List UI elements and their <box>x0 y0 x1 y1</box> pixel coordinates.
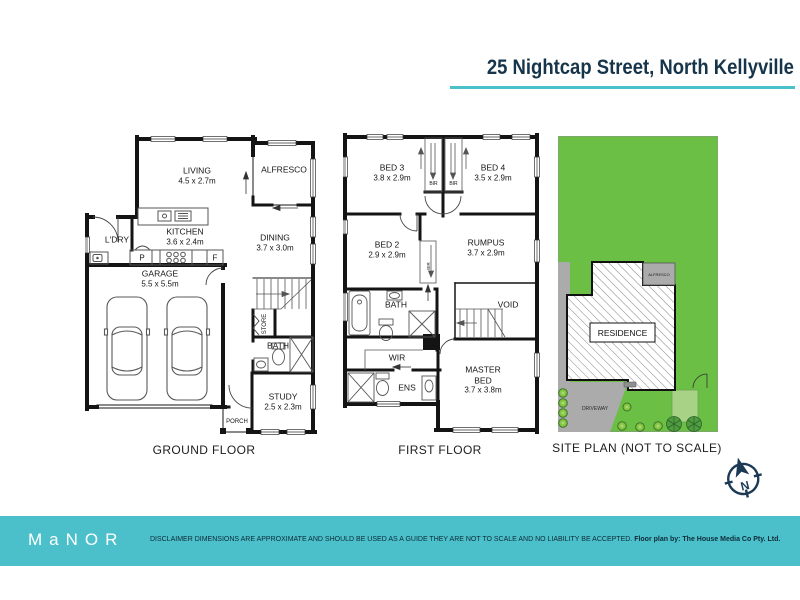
site-residence-label: RESIDENCE <box>598 328 648 338</box>
toilet-icon <box>376 373 389 396</box>
laundry-sink-icon <box>90 252 108 264</box>
site-porch-step <box>624 382 636 387</box>
room-label-bath: BATH <box>267 341 289 352</box>
compass-icon: N <box>715 450 771 506</box>
ground-stairs <box>253 279 311 309</box>
disclaimer-body: DISCLAIMER DIMENSIONS ARE APPROXIMATE AN… <box>150 536 632 543</box>
cooktop-icon <box>167 252 186 263</box>
basin-icon <box>387 291 402 300</box>
bathtub-icon <box>349 291 370 335</box>
site-plan: RESIDENCE ALFRESCO DRIVEWAY <box>558 136 718 432</box>
wall-block <box>423 334 440 350</box>
kitchen-island <box>138 208 208 225</box>
site-driveway-label: DRIVEWAY <box>582 406 609 412</box>
room-label-ens: ENS <box>398 383 415 394</box>
car-icon <box>165 297 210 400</box>
ground-floor-plan: P F STORE PORCH LIVING4.5 x 2.7m ALFRESC… <box>85 117 320 442</box>
site-plan-drawing: RESIDENCE ALFRESCO DRIVEWAY <box>558 136 718 432</box>
compass-north-label: N <box>739 478 751 494</box>
car-icon <box>105 297 150 400</box>
porch-label: PORCH <box>226 419 248 425</box>
room-label-alfresco: ALFRESCO <box>261 165 307 176</box>
shower-icon <box>348 373 374 402</box>
room-label-master-bed: MASTERBED 3.7 x 3.8m <box>464 364 501 395</box>
manor-logo: MaNOR <box>28 530 124 550</box>
room-label-kitchen: KITCHEN3.6 x 2.4m <box>166 227 203 248</box>
pantry-label: P <box>139 254 144 263</box>
bir-label: BIR <box>449 181 458 187</box>
room-label-bed2: BED 22.9 x 2.9m <box>368 240 405 261</box>
store-label: STORE <box>262 314 268 335</box>
bir-label: BIR <box>426 262 431 270</box>
room-label-dining: DINING3.7 x 3.0m <box>256 233 293 254</box>
room-label-ldry: L'DRY <box>105 235 129 246</box>
fridge-label: F <box>213 254 218 263</box>
first-floor-caption: FIRST FLOOR <box>398 443 482 457</box>
ens-fixtures <box>348 373 436 402</box>
first-bath-fixtures <box>349 291 435 341</box>
shower-icon <box>290 337 313 372</box>
room-label-bed4: BED 43.5 x 2.9m <box>474 163 511 184</box>
void-stairs <box>455 309 505 337</box>
room-label-living: LIVING4.5 x 2.7m <box>178 166 215 187</box>
site-plan-caption: SITE PLAN (NOT TO SCALE) <box>552 441 722 455</box>
first-floor-plan: BIR BIR BIR BED 33.8 x 2.9m BED 43.5 x 2… <box>343 117 543 442</box>
room-label-garage: GARAGE5.5 x 5.5m <box>141 269 178 290</box>
room-label-study: STUDY2.5 x 2.3m <box>264 392 301 413</box>
room-label-bed3: BED 33.8 x 2.9m <box>373 163 410 184</box>
basin-icon <box>422 376 436 400</box>
property-address: 25 Nightcap Street, North Kellyville <box>487 56 794 80</box>
basin-icon <box>254 358 268 371</box>
disclaimer-text: DISCLAIMER DIMENSIONS ARE APPROXIMATE AN… <box>150 536 780 543</box>
room-label-void: VOID <box>498 300 519 311</box>
floorplan-sheet: 25 Nightcap Street, North Kellyville <box>0 0 800 600</box>
ground-floor-caption: GROUND FLOOR <box>153 443 256 457</box>
porch-posts <box>220 428 252 434</box>
bir-label: BIR <box>429 181 438 187</box>
room-label-wir: WIR <box>389 353 406 364</box>
floorplan-credit: Floor plan by: The House Media Co Pty. L… <box>634 536 780 543</box>
room-label-rumpus: RUMPUS3.7 x 2.9m <box>467 238 504 259</box>
site-alfresco-label: ALFRESCO <box>648 272 670 277</box>
address-underline <box>450 86 795 89</box>
room-label-bath: BATH <box>385 300 407 311</box>
shower-icon <box>409 311 435 337</box>
